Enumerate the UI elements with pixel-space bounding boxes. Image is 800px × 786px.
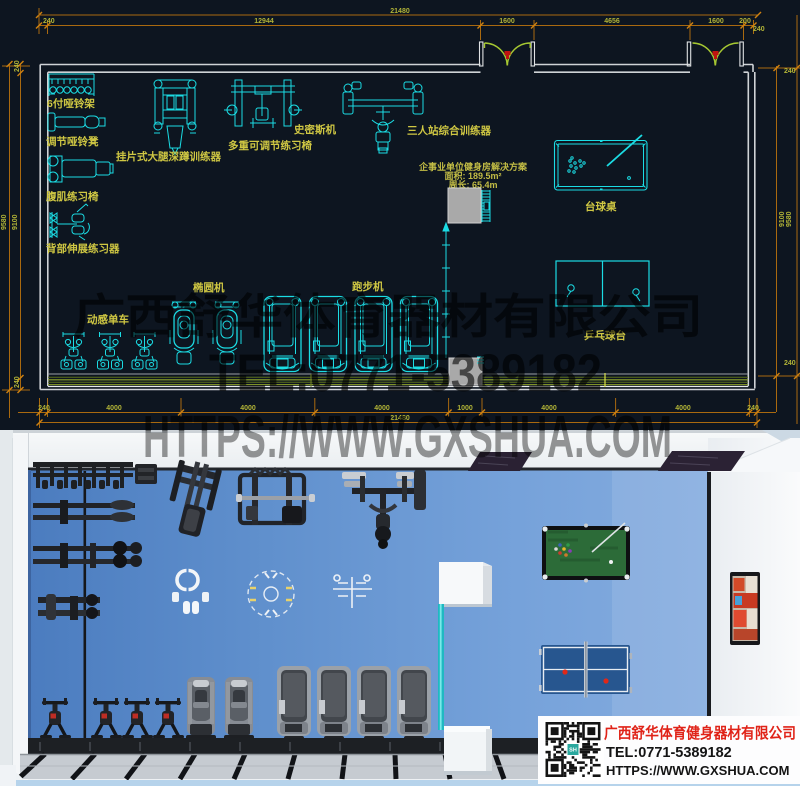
svg-text:240: 240 bbox=[753, 26, 765, 33]
svg-text:12944: 12944 bbox=[254, 18, 274, 25]
svg-text:调节哑铃凳: 调节哑铃凳 bbox=[46, 135, 99, 148]
svg-text:TEL:0771-5389182: TEL:0771-5389182 bbox=[209, 344, 602, 403]
svg-text:1600: 1600 bbox=[499, 18, 515, 25]
svg-text:4656: 4656 bbox=[604, 18, 620, 25]
svg-text:腹肌练习椅: 腹肌练习椅 bbox=[46, 190, 99, 203]
svg-text:4000: 4000 bbox=[675, 405, 691, 412]
svg-text:广西舒华体育器材有限公司: 广西舒华体育器材有限公司 bbox=[73, 290, 703, 343]
svg-text:6付哑铃架: 6付哑铃架 bbox=[47, 97, 95, 110]
svg-text:240: 240 bbox=[14, 376, 21, 388]
svg-text:240: 240 bbox=[43, 18, 55, 25]
svg-text:4000: 4000 bbox=[106, 405, 122, 412]
svg-text:240: 240 bbox=[747, 405, 759, 412]
svg-text:台球桌: 台球桌 bbox=[585, 200, 617, 213]
svg-text:HTTPS://WWW.GXSHUA.COM: HTTPS://WWW.GXSHUA.COM bbox=[606, 763, 789, 778]
svg-text:多重可调节练习椅: 多重可调节练习椅 bbox=[228, 139, 312, 152]
svg-text:TEL:0771-5389182: TEL:0771-5389182 bbox=[606, 745, 732, 761]
svg-text:240: 240 bbox=[38, 405, 50, 412]
svg-text:史密斯机: 史密斯机 bbox=[294, 123, 336, 136]
svg-text:广西舒华体育健身器材有限公司: 广西舒华体育健身器材有限公司 bbox=[604, 724, 796, 742]
svg-text:240: 240 bbox=[14, 60, 21, 72]
svg-text:21480: 21480 bbox=[390, 8, 410, 15]
svg-text:背部伸展练习器: 背部伸展练习器 bbox=[46, 242, 120, 255]
svg-text:9100: 9100 bbox=[779, 211, 786, 227]
svg-text:200: 200 bbox=[739, 18, 751, 25]
svg-text:9580: 9580 bbox=[786, 211, 793, 227]
svg-text:9100: 9100 bbox=[12, 214, 19, 230]
svg-text:9580: 9580 bbox=[1, 214, 8, 230]
svg-text:挂片式大腿深蹲训练器: 挂片式大腿深蹲训练器 bbox=[116, 150, 221, 163]
svg-text:240: 240 bbox=[784, 360, 796, 367]
svg-text:三人站综合训练器: 三人站综合训练器 bbox=[407, 124, 491, 137]
svg-text:1600: 1600 bbox=[708, 18, 724, 25]
svg-text:240: 240 bbox=[784, 68, 796, 75]
svg-text:SH: SH bbox=[569, 748, 577, 754]
